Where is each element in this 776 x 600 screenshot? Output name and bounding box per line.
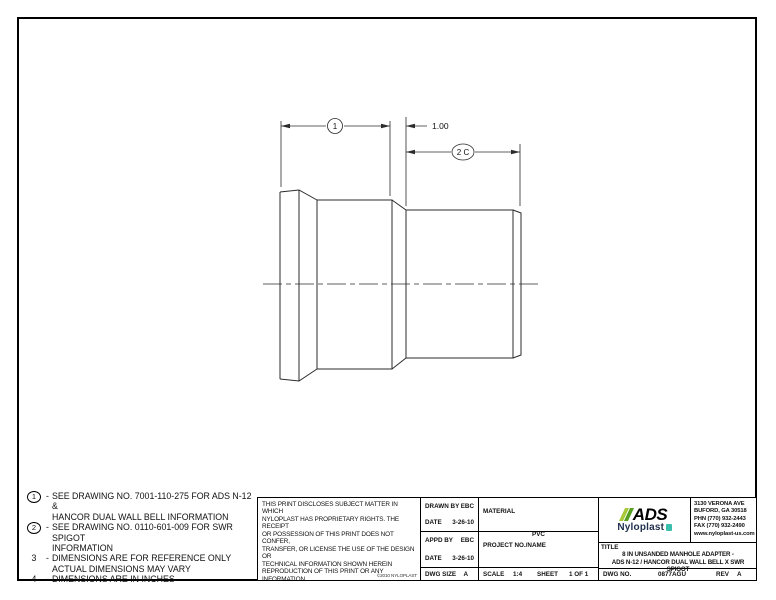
sheet-value: 1 OF 1	[569, 571, 588, 578]
material-column: MATERIAL PVC PROJECT NO./NAME SCALE 1:4 …	[479, 498, 599, 580]
address-line: PHN (770) 932-2443	[694, 516, 755, 524]
dimension-2c-label: 2 C	[457, 148, 470, 157]
note-4-line-1: DIMENSIONS ARE IN INCHES	[52, 574, 175, 584]
note-dash: -	[43, 553, 52, 574]
dwg-size-value: A	[463, 571, 468, 578]
disclaimer-line: TRANSFER, OR LICENSE THE USE OF THE DESI…	[262, 546, 417, 561]
note-1-line-2: HANCOR DUAL WALL BELL INFORMATION	[52, 512, 228, 522]
ads-logo-text: ADS	[633, 507, 667, 522]
note-item-3: 3 - DIMENSIONS ARE FOR REFERENCE ONLY AC…	[27, 553, 259, 574]
material-label: MATERIAL	[483, 508, 515, 515]
sheet-label: SHEET	[537, 571, 569, 578]
disclaimer-line: THIS PRINT DISCLOSES SUBJECT MATTER IN W…	[262, 501, 417, 516]
extension-lines	[281, 117, 520, 206]
note-dash: -	[43, 491, 52, 522]
title-label: TITLE	[601, 544, 755, 551]
address-line: BUFORD, GA 30518	[694, 508, 755, 516]
copyright-text: ©2010 NYLOPLAST	[377, 572, 417, 579]
note-3-line-1: DIMENSIONS ARE FOR REFERENCE ONLY	[52, 553, 231, 563]
dwg-no-label: DWG NO.	[603, 571, 641, 578]
rev-label: REV	[703, 571, 729, 578]
dimension-arrows	[281, 124, 520, 155]
address-line: 3130 VERONA AVE	[694, 501, 755, 509]
appd-by-value: EBC	[461, 537, 474, 544]
note-dash: -	[43, 574, 52, 584]
note-balloon-1: 1	[27, 491, 41, 503]
note-balloon-2: 2	[27, 522, 41, 534]
note-3-line-2: ACTUAL DIMENSIONS MAY VARY	[52, 564, 191, 574]
drawing-title-cell: TITLE 8 IN UNSANDED MANHOLE ADAPTER - AD…	[599, 543, 757, 569]
appd-date-value: 3-26-10	[452, 555, 474, 562]
drawing-title-line-1: 8 IN UNSANDED MANHOLE ADAPTER -	[601, 551, 755, 559]
disclaimer-line: OR POSSESSION OF THIS PRINT DOES NOT CON…	[262, 531, 417, 546]
appd-date-label: DATE	[425, 555, 442, 562]
disclaimer-line: TECHNICAL INFORMATION SHOWN HEREIN	[262, 561, 417, 568]
nyloplast-logo-text: Nyloplast	[617, 522, 664, 533]
dimension-1-label: 1	[333, 122, 338, 131]
note-dash: -	[43, 522, 52, 553]
appd-by-label: APPD BY	[425, 537, 453, 544]
ads-logo: ADS Nyloplast	[599, 498, 691, 543]
dwg-no-value: 0877AGU	[641, 571, 703, 578]
address-line: www.nyloplast-us.com	[694, 531, 755, 539]
disclaimer-line: NYLOPLAST HAS PROPRIETARY RIGHTS. THE RE…	[262, 516, 417, 531]
note-number-4: 4	[27, 574, 41, 584]
scale-label: SCALE	[483, 571, 513, 578]
notes-list: 1 - SEE DRAWING NO. 7001-110-275 FOR ADS…	[27, 491, 259, 585]
note-number-3: 3	[27, 553, 41, 574]
note-item-1: 1 - SEE DRAWING NO. 7001-110-275 FOR ADS…	[27, 491, 259, 522]
company-address: 3130 VERONA AVE BUFORD, GA 30518 PHN (77…	[691, 498, 757, 543]
company-block: ADS Nyloplast 3130 VERONA AVE BUFORD, GA…	[599, 498, 757, 580]
rev-value: A	[737, 571, 747, 578]
project-label: PROJECT NO./NAME	[483, 542, 546, 549]
gap-dimension-label: 1.00	[432, 121, 449, 131]
note-2-line-1: SEE DRAWING NO. 0110-601-009 FOR SWR SPI…	[52, 522, 233, 542]
note-2-line-2: INFORMATION	[52, 543, 113, 553]
dwg-size-label: DWG SIZE	[425, 571, 456, 578]
proprietary-notice: THIS PRINT DISCLOSES SUBJECT MATTER IN W…	[258, 498, 421, 580]
title-block: THIS PRINT DISCLOSES SUBJECT MATTER IN W…	[257, 497, 757, 581]
drawing-sheet: 1 2 C 1.00 1 - SEE DRAWING NO. 7001-110-…	[0, 0, 776, 600]
nyloplast-logo-mark-icon	[666, 524, 672, 531]
drawn-by-value: EBC	[461, 503, 474, 510]
approval-column: DRAWN BY EBC DATE 3-26-10 APPD BY EBC DA…	[421, 498, 479, 580]
address-line: FAX (770) 932-2490	[694, 523, 755, 531]
drawn-date-label: DATE	[425, 519, 442, 526]
part-profile	[280, 190, 521, 381]
note-item-2: 2 - SEE DRAWING NO. 0110-601-009 FOR SWR…	[27, 522, 259, 553]
drawn-date-value: 3-26-10	[452, 519, 474, 526]
note-item-4: 4 - DIMENSIONS ARE IN INCHES	[27, 574, 259, 584]
scale-value: 1:4	[513, 571, 537, 578]
note-1-line-1: SEE DRAWING NO. 7001-110-275 FOR ADS N-1…	[52, 491, 251, 511]
drawn-by-label: DRAWN BY	[425, 503, 459, 510]
dwg-no-row: DWG NO. 0877AGU REV A	[599, 569, 757, 580]
